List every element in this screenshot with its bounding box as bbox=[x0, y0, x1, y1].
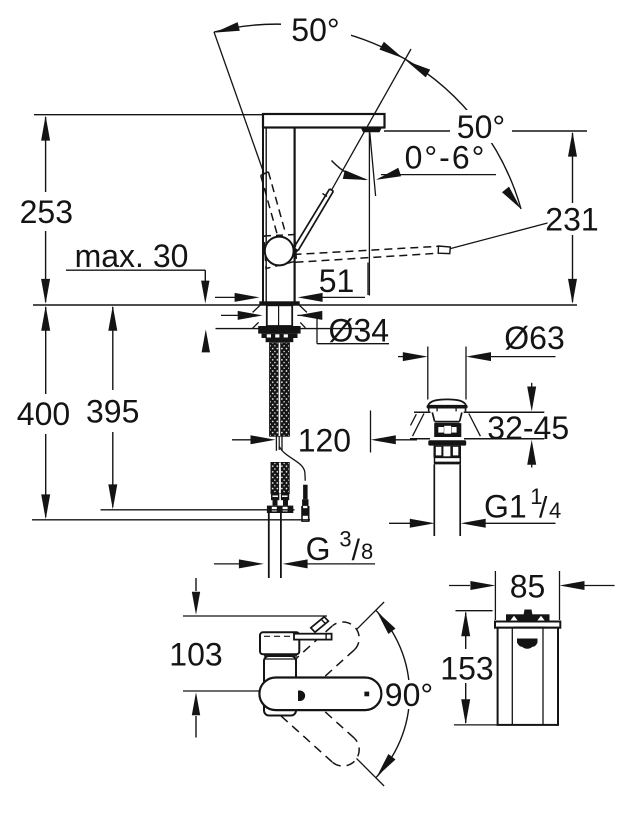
svg-text:85: 85 bbox=[510, 569, 546, 605]
svg-text:231: 231 bbox=[545, 202, 598, 238]
svg-text:50°: 50° bbox=[291, 12, 339, 48]
svg-text:90°: 90° bbox=[385, 677, 433, 713]
svg-text:0°-6°: 0°-6° bbox=[405, 140, 487, 176]
svg-text:Ø63: Ø63 bbox=[504, 320, 564, 356]
svg-text:395: 395 bbox=[86, 394, 139, 430]
svg-text:253: 253 bbox=[20, 194, 73, 230]
svg-text:51: 51 bbox=[319, 263, 355, 299]
svg-text:Ø34: Ø34 bbox=[329, 313, 389, 349]
svg-text:120: 120 bbox=[298, 422, 351, 458]
svg-text:153: 153 bbox=[440, 651, 493, 687]
svg-text:32-45: 32-45 bbox=[487, 410, 569, 446]
svg-text:max. 30: max. 30 bbox=[75, 238, 189, 274]
svg-text:400: 400 bbox=[17, 396, 70, 432]
svg-text:103: 103 bbox=[169, 637, 222, 673]
